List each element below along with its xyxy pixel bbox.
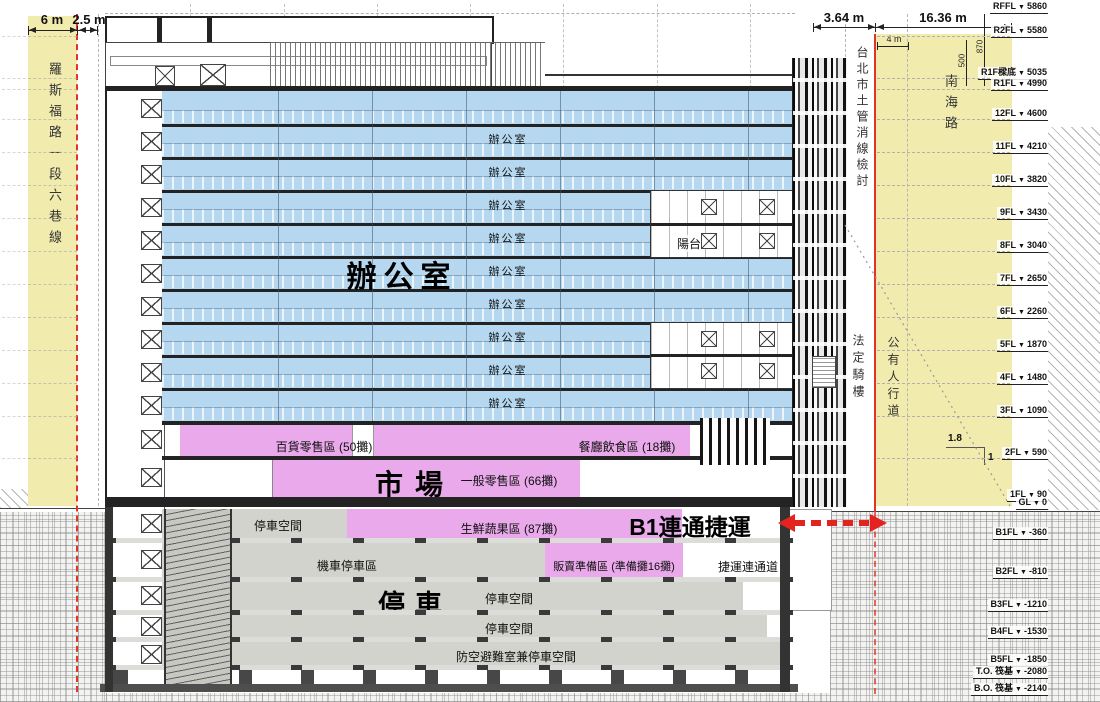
level-datum-icon: ▼ [1018, 408, 1025, 415]
level-datum-icon: ▼ [1015, 686, 1022, 693]
balcony-window [759, 199, 775, 215]
level-datum-icon: ▼ [1033, 500, 1040, 507]
level-datum-icon: ▼ [1018, 70, 1025, 77]
level-gridline-right [877, 119, 1010, 120]
level-gridline-margin [2, 251, 26, 252]
level-gridline-right [877, 36, 1010, 37]
ground-hatch-bottom [106, 693, 830, 702]
vdim-500: 500 [958, 49, 967, 73]
balcony-window [759, 363, 775, 379]
dimline-right [813, 27, 1012, 28]
dim-arrow [868, 24, 875, 30]
level-gridline-margin [2, 152, 26, 153]
level-gridline-left [28, 458, 77, 459]
level-value: 1090 [1027, 405, 1047, 415]
dim-6m: 6 m [30, 12, 74, 27]
level-value: -2140 [1024, 683, 1047, 693]
level-gridline-left [28, 36, 77, 37]
arcade-label: 法定騎樓 [850, 334, 867, 402]
balcony-window [701, 363, 717, 379]
dim-tick [875, 23, 876, 32]
dim-tick [77, 26, 78, 35]
level-gridline-margin [2, 36, 26, 37]
level-value: 3820 [1027, 174, 1047, 184]
level-name: T.O. 筏基 [976, 666, 1013, 676]
level-datum-icon: ▼ [1015, 602, 1022, 609]
balcony-slab [651, 354, 793, 357]
level-gridline-right [877, 152, 1010, 153]
ground-line-right [793, 511, 1100, 512]
general-retail-label: 一般零售區 (66攤) [443, 472, 575, 489]
level-gridline-left [28, 317, 77, 318]
level-gridline-left [28, 152, 77, 153]
level-value: 4990 [1027, 78, 1047, 88]
core-stair-icon [141, 297, 162, 316]
level-gridline-left [28, 185, 77, 186]
level-gridline-margin [2, 119, 26, 120]
level-datum-icon: ▼ [1018, 111, 1025, 118]
level-gridline-right [877, 383, 1010, 384]
level-gridline-right [877, 89, 1010, 90]
level-gridline-left [28, 383, 77, 384]
shelter-label: 防空避難室兼停車空間 [436, 648, 596, 665]
b4-parking-label: 停車空間 [449, 620, 569, 637]
balcony-label: 陽台 [677, 235, 701, 252]
level-datum-icon: ▼ [1018, 28, 1025, 35]
level-name: 8FL [1000, 240, 1016, 250]
review-line-label: 台北市土管消線檢討 [854, 46, 871, 190]
foundation-mat [100, 684, 798, 692]
dim-arrow [29, 27, 36, 33]
arcade-screen [700, 418, 770, 465]
core-stair-icon [141, 514, 162, 533]
level-name: R2FL [994, 25, 1017, 35]
level-value: -1530 [1024, 626, 1047, 636]
level-name: RFFL [993, 1, 1016, 11]
level-value: 5035 [1027, 67, 1047, 77]
level-name: B2FL [996, 566, 1019, 576]
level-gridline-left [28, 416, 77, 417]
level-gridline-left [28, 218, 77, 219]
level-datum-icon: ▼ [1018, 210, 1025, 217]
level-value: -2080 [1024, 666, 1047, 676]
office-floor-label: 辦公室 [470, 362, 546, 378]
office-floor-label: 辦公室 [470, 164, 546, 180]
dimline-4m [877, 46, 908, 47]
level-value: 3430 [1027, 207, 1047, 217]
regulation-line-right-below [874, 512, 876, 694]
facade-louver [792, 58, 847, 507]
office-floor-label: 辦公室 [470, 230, 546, 246]
balcony-zone-lower [650, 322, 794, 389]
level-gridline-margin [2, 317, 26, 318]
level-value: 1870 [1027, 339, 1047, 349]
level-value: -1210 [1024, 599, 1047, 609]
level-datum-icon: ▼ [1018, 243, 1025, 250]
level-name: R1FL [994, 78, 1017, 88]
level-datum-icon: ▼ [1018, 342, 1025, 349]
roof-parapet [105, 16, 494, 44]
dim-tick [877, 42, 878, 50]
balcony-window [701, 331, 717, 347]
level-name: 9FL [1000, 207, 1016, 217]
core-stair-icon [141, 617, 162, 636]
core-stair-icon [141, 165, 162, 184]
slope-rise-line [984, 447, 985, 465]
level-value: 0 [1042, 497, 1047, 507]
level-name: 3FL [1000, 405, 1016, 415]
level-row-B1FL: B1FL▼-360 [993, 527, 1048, 540]
level-value: 2260 [1027, 306, 1047, 316]
roof-equipment-screen [270, 42, 545, 87]
level-name: 10FL [995, 174, 1016, 184]
level-name: B.O. 筏基 [974, 683, 1013, 693]
office-floor-slab [162, 124, 792, 127]
level-value: 5860 [1027, 1, 1047, 11]
level-name: B3FL [991, 599, 1014, 609]
level-name: 4FL [1000, 372, 1016, 382]
level-gridline-right [877, 458, 1010, 459]
office-floor-slab [162, 157, 792, 160]
office-window-strip [162, 110, 792, 123]
level-row-B2FL: B2FL▼-810 [993, 566, 1048, 579]
core-stair-icon [141, 586, 162, 605]
level-datum-icon: ▼ [1018, 4, 1025, 11]
dimline-left [28, 30, 98, 31]
level-row-B4FL: B4FL▼-1530 [988, 626, 1048, 639]
dim-arrow [877, 24, 884, 30]
core-stair-icon [141, 264, 162, 283]
core-stair-icon [141, 330, 162, 349]
boundary-gridline [907, 14, 908, 506]
parapet-post [207, 16, 212, 42]
fresh-produce-label: 生鮮蔬果區 (87攤) [443, 520, 575, 537]
level-gridline-right [877, 185, 1010, 186]
office-floor-label: 辦公室 [470, 329, 546, 345]
dim-arrow [70, 27, 77, 33]
level-row-T.O. 筏基: T.O. 筏基▼-2080 [973, 666, 1048, 679]
road-surface-hatch [0, 489, 28, 508]
level-gridline-right [877, 251, 1010, 252]
level-name: 5FL [1000, 339, 1016, 349]
office-column-line [560, 91, 561, 421]
parapet-post [157, 16, 162, 42]
level-gridline-margin [2, 416, 26, 417]
office-big-label: 辦公室 [312, 252, 492, 296]
restaurant-label: 餐廳飲食區 (18攤) [561, 438, 693, 455]
level-row-GL: GL▼0 [1016, 497, 1048, 510]
level-name: B4FL [991, 626, 1014, 636]
balcony-window [701, 233, 717, 249]
dim-2-5m: 2.5 m [70, 12, 108, 27]
office-floor-label: 辦公室 [470, 263, 546, 279]
core-stair-icon [141, 468, 162, 487]
level-name: 12FL [995, 108, 1016, 118]
dim-arrow [90, 27, 97, 33]
sidewalk-label: 公有人行道 [885, 336, 902, 421]
dim-arrow [79, 27, 86, 33]
machine-room-box [155, 66, 175, 86]
level-row-B.O. 筏基: B.O. 筏基▼-2140 [971, 683, 1048, 696]
setback-line-left [76, 14, 78, 692]
vendor-prep-label: 販賣準備區 (準備攤16攤) [528, 558, 700, 574]
core-stair-icon [141, 550, 162, 569]
level-gridline-margin [2, 284, 26, 285]
b1-parking-label: 停車空間 [218, 517, 338, 534]
office-floor-label: 辦公室 [470, 197, 546, 213]
level-name: R1F樑底 [981, 67, 1016, 77]
dim-3-64m: 3.64 m [813, 10, 875, 25]
level-datum-icon: ▼ [1015, 629, 1022, 636]
ground-slab [105, 497, 793, 507]
adjacent-building-hatch [1048, 127, 1100, 510]
level-gridline-margin [2, 383, 26, 384]
slope-run-label: 1.8 [948, 433, 962, 444]
level-value: 4600 [1027, 108, 1047, 118]
core-stair-icon [141, 645, 162, 664]
balcony-window [701, 199, 717, 215]
dim-tick [97, 26, 98, 35]
lobby-1f [190, 460, 273, 497]
level-value: 590 [1032, 447, 1047, 457]
level-gridline-margin [2, 89, 26, 90]
level-name: B1FL [996, 527, 1019, 537]
level-value: -360 [1029, 527, 1047, 537]
slope-run-line [946, 447, 984, 448]
level-value: 1480 [1027, 372, 1047, 382]
level-gridline-right [877, 350, 1010, 351]
level-gridline-margin [2, 185, 26, 186]
office-column-line [278, 91, 279, 421]
ground-hatch-left [0, 512, 106, 702]
core-stair-icon [141, 231, 162, 250]
level-gridline-left [28, 284, 77, 285]
basement-wall-right [780, 507, 790, 692]
vdim-870: 870 [976, 35, 985, 59]
regulation-line-right [874, 34, 876, 512]
core-stair-icon [141, 363, 162, 382]
level-datum-icon: ▼ [1020, 569, 1027, 576]
level-value: 2650 [1027, 273, 1047, 283]
moto-parking-label: 機車停車區 [287, 557, 407, 574]
machine-room-box [200, 64, 226, 86]
boundary-gridline [98, 14, 99, 506]
office-floor-label: 辦公室 [470, 395, 546, 411]
level-row-RFFL: RFFL▼5860 [990, 1, 1048, 14]
balcony-zone-upper: 陽台 [650, 190, 794, 258]
balcony-window [759, 233, 775, 249]
parking-ramp [164, 509, 232, 684]
dept-retail-label: 百貨零售區 (50攤) [258, 438, 390, 455]
ground-line-left [0, 508, 106, 509]
balcony-slab [651, 223, 793, 226]
level-gridline-margin [2, 218, 26, 219]
core-stair-icon [141, 99, 162, 118]
level-value: -1850 [1024, 654, 1047, 664]
core-stair-icon [141, 198, 162, 217]
dim-arrow [814, 24, 821, 30]
dim-tick [908, 42, 909, 50]
facade-elevator-box [812, 356, 836, 388]
level-name: B5FL [991, 654, 1014, 664]
level-value: -810 [1029, 566, 1047, 576]
level-name: 6FL [1000, 306, 1016, 316]
level-gridline-right [877, 218, 1010, 219]
section-drawing: 羅斯福路一段六巷線 南海路 陽台 辦公室 辦公室辦公室辦公室辦公室辦公室辦公室辦… [0, 0, 1100, 702]
level-row-B3FL: B3FL▼-1210 [988, 599, 1048, 612]
left-road-name: 羅斯福路一段六巷線 [45, 62, 64, 251]
b3-parking-label: 停車空間 [449, 590, 569, 607]
level-gridline-left [28, 119, 77, 120]
level-gridline-left [28, 251, 77, 252]
level-gridline-margin [2, 458, 26, 459]
roof-railing [545, 74, 793, 76]
level-gridline-margin [2, 78, 26, 79]
level-name: 11FL [996, 141, 1017, 151]
level-gridline-left [28, 350, 77, 351]
level-value: 4210 [1027, 141, 1047, 151]
level-datum-icon: ▼ [1018, 375, 1025, 382]
b1-mrt-label: B1連通捷運 [600, 508, 780, 542]
level-datum-icon: ▼ [1020, 530, 1027, 537]
level-gridline-left [28, 78, 77, 79]
level-datum-icon: ▼ [1018, 81, 1025, 88]
ground-hatch-right [830, 512, 1100, 702]
mrt-passage-label: 捷運連通道 [688, 558, 808, 575]
level-datum-icon: ▼ [1018, 309, 1025, 316]
level-gridline-margin [2, 350, 26, 351]
level-datum-icon: ▼ [1015, 657, 1022, 664]
level-gridline-right [877, 416, 1010, 417]
right-road-name: 南海路 [941, 74, 960, 137]
level-datum-icon: ▼ [1015, 669, 1022, 676]
level-datum-icon: ▼ [1018, 144, 1025, 151]
level-datum-icon: ▼ [1023, 450, 1030, 457]
level-name: 7FL [1000, 273, 1016, 283]
office-floor-label: 辦公室 [470, 131, 546, 147]
level-value: 3040 [1027, 240, 1047, 250]
level-value: 5580 [1027, 25, 1047, 35]
level-gridline-right [877, 284, 1010, 285]
balcony-window [759, 331, 775, 347]
level-gridline-left [28, 89, 77, 90]
core-stair-icon [141, 396, 162, 415]
level-name: 2FL [1005, 447, 1021, 457]
core-stair-icon [141, 430, 162, 449]
level-gridline-right [877, 317, 1010, 318]
office-floor-label: 辦公室 [470, 296, 546, 312]
level-datum-icon: ▼ [1018, 177, 1025, 184]
core-stair-icon [141, 132, 162, 151]
top-gridline [105, 13, 795, 14]
level-datum-icon: ▼ [1018, 276, 1025, 283]
level-name: GL [1019, 497, 1032, 507]
basement-wall-left [105, 507, 113, 692]
